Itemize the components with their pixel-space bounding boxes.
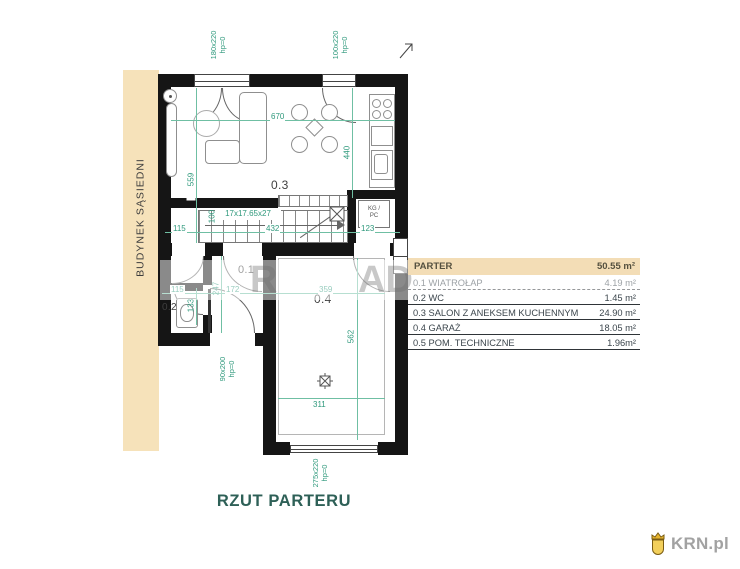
sink-bowl — [374, 154, 388, 174]
legend-row-num: 0.2 — [413, 293, 426, 303]
north-arrow-icon — [396, 38, 418, 62]
legend-row: 0.4 GARAŻ 18.05 m² — [408, 320, 640, 335]
floor-plan-page: BUDYNEK SĄSIEDNI — [0, 0, 740, 569]
wall-garage-bottom-2 — [378, 442, 408, 455]
legend-row-name: WIATROŁAP — [429, 278, 483, 288]
dim-line — [196, 88, 197, 243]
dim-label-123: 123 — [360, 224, 375, 233]
dim-line — [278, 398, 385, 399]
legend-header-area: 50.55 m² — [597, 261, 635, 272]
floor-drain-symbol — [316, 372, 334, 390]
legend-row-area: 1.45 m² — [604, 293, 636, 303]
legend-row-area: 4.19 m² — [604, 278, 636, 288]
legend-row-num: 0.3 — [413, 308, 426, 318]
legend-header-label: PARTER — [414, 261, 452, 272]
krn-logo-text: KRN.pl — [671, 534, 729, 554]
wall-mid-2 — [205, 243, 223, 256]
sofa-seat — [205, 140, 240, 164]
sofa-back — [239, 92, 267, 164]
stove-burner — [372, 99, 381, 108]
legend-row-name: GARAŻ — [429, 323, 461, 333]
legend-row-area: 24.90 m² — [599, 308, 636, 318]
watermark-fragment: AD — [358, 260, 413, 300]
boiler-label-line1: KG / — [358, 206, 390, 213]
opening-hp: hp=0 — [320, 465, 329, 482]
dining-chair — [321, 136, 338, 153]
radiator — [166, 103, 177, 177]
dim-label-432: 432 — [265, 224, 280, 233]
kitchen-cabinet — [371, 126, 393, 146]
legend-header-row: PARTER 50.55 m² — [408, 258, 640, 275]
lamp-dot — [169, 95, 172, 98]
dim-line — [352, 88, 353, 198]
legend-row: 0.5 POM. TECHNICZNE 1.96m² — [408, 335, 640, 350]
dining-chair — [291, 104, 308, 121]
stove-burner — [383, 110, 392, 119]
opening-hp: hp=0 — [218, 37, 227, 54]
dining-table — [305, 118, 323, 136]
legend-row-area: 18.05 m² — [599, 323, 636, 333]
stove-burner — [383, 99, 392, 108]
neighbor-building-label: BUDYNEK SĄSIEDNI — [135, 118, 148, 318]
page-title: RZUT PARTERU — [196, 492, 372, 511]
wall-entry-bottom-1 — [158, 333, 210, 346]
opening-hp: hp=0 — [227, 361, 236, 378]
room-label-0-2: 0.2 — [162, 302, 177, 313]
legend-row-name: SALON Z ANEKSEM KUCHENNYM — [429, 308, 579, 318]
stairs-label: 17x17.65x27 — [215, 208, 281, 220]
watermark-fragment: R — [250, 260, 277, 300]
dim-label-115a: 115 — [172, 224, 187, 233]
legend-row: 0.2 WC 1.45 m² — [408, 290, 640, 305]
legend-row-area: 1.96m² — [607, 338, 636, 348]
legend-row-num: 0.5 — [413, 338, 426, 348]
opening-label-top-door: 180x220 hp=0 — [210, 21, 228, 69]
opening-label-entry-door: 90x200 hp=0 — [219, 345, 237, 393]
room-label-0-3: 0.3 — [271, 178, 289, 192]
legend-row-name: WC — [429, 293, 445, 303]
stove-burner — [372, 110, 381, 119]
krn-crest-icon — [647, 531, 669, 557]
fan-symbol — [329, 206, 345, 222]
legend-row: 0.1 WIATROŁAP 4.19 m² — [408, 275, 640, 290]
krn-logo: KRN.pl — [647, 531, 729, 557]
top-door-glyph — [194, 74, 250, 87]
wall-techroom-top — [347, 190, 408, 199]
opening-hp: hp=0 — [340, 37, 349, 54]
dim-label-311: 311 — [312, 400, 327, 409]
wall-mid-1 — [158, 243, 172, 256]
legend-row-num: 0.4 — [413, 323, 426, 333]
dining-chair — [321, 104, 338, 121]
garage-door-leaf — [290, 445, 378, 453]
dim-label-670: 670 — [270, 112, 285, 121]
legend-row-name: POM. TECHNICZNE — [429, 338, 515, 348]
dim-label-559: 559 — [187, 159, 196, 201]
opening-label-garage-door: 275x220 hp=0 — [312, 449, 330, 497]
area-legend-table: PARTER 50.55 m² 0.1 WIATROŁAP 4.19 m² 0.… — [408, 258, 640, 350]
opening-label-kitchen-window: 100x220 hp=0 — [332, 21, 350, 69]
rug-circle — [193, 110, 220, 137]
legend-row: 0.3 SALON Z ANEKSEM KUCHENNYM 24.90 m² — [408, 305, 640, 320]
legend-row-num: 0.1 — [413, 278, 426, 288]
kitchen-window-glyph — [322, 74, 356, 87]
wall-top-2 — [250, 74, 322, 87]
boiler-label-line2: PC — [358, 213, 390, 220]
dim-label-100: 100 — [208, 196, 217, 238]
dining-chair — [291, 136, 308, 153]
wall-garage-bottom-1 — [263, 442, 290, 455]
dim-label-440: 440 — [343, 132, 352, 174]
dim-label-562: 562 — [347, 316, 356, 358]
